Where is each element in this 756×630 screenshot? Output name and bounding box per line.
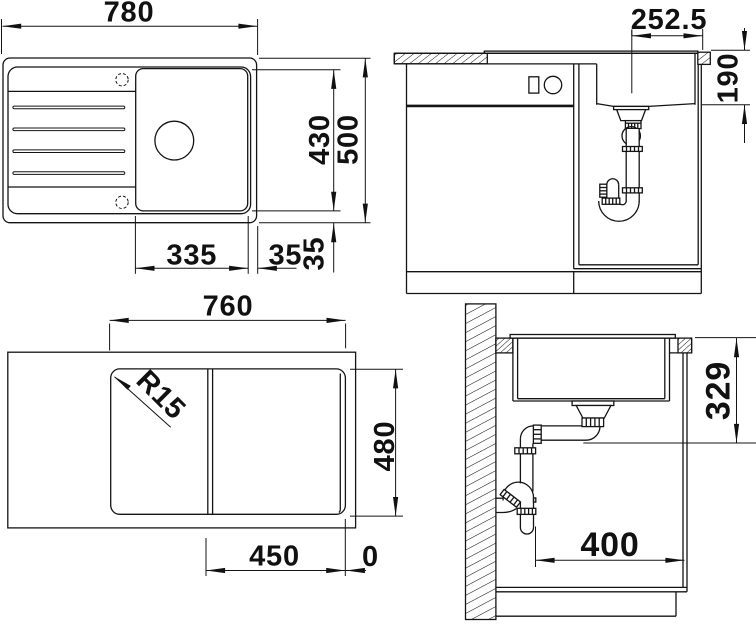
svg-text:329: 329 xyxy=(700,361,738,420)
svg-text:480: 480 xyxy=(369,421,401,472)
svg-text:430: 430 xyxy=(304,114,336,165)
svg-text:0: 0 xyxy=(362,541,379,573)
svg-text:190: 190 xyxy=(713,53,745,104)
svg-text:500: 500 xyxy=(333,114,365,165)
svg-text:35: 35 xyxy=(268,240,302,272)
svg-text:450: 450 xyxy=(249,541,300,573)
svg-text:760: 760 xyxy=(203,291,254,323)
svg-text:335: 335 xyxy=(166,240,217,272)
svg-text:252.5: 252.5 xyxy=(631,4,708,36)
svg-text:400: 400 xyxy=(580,526,639,564)
svg-text:780: 780 xyxy=(104,0,155,29)
svg-text:35: 35 xyxy=(299,237,331,271)
